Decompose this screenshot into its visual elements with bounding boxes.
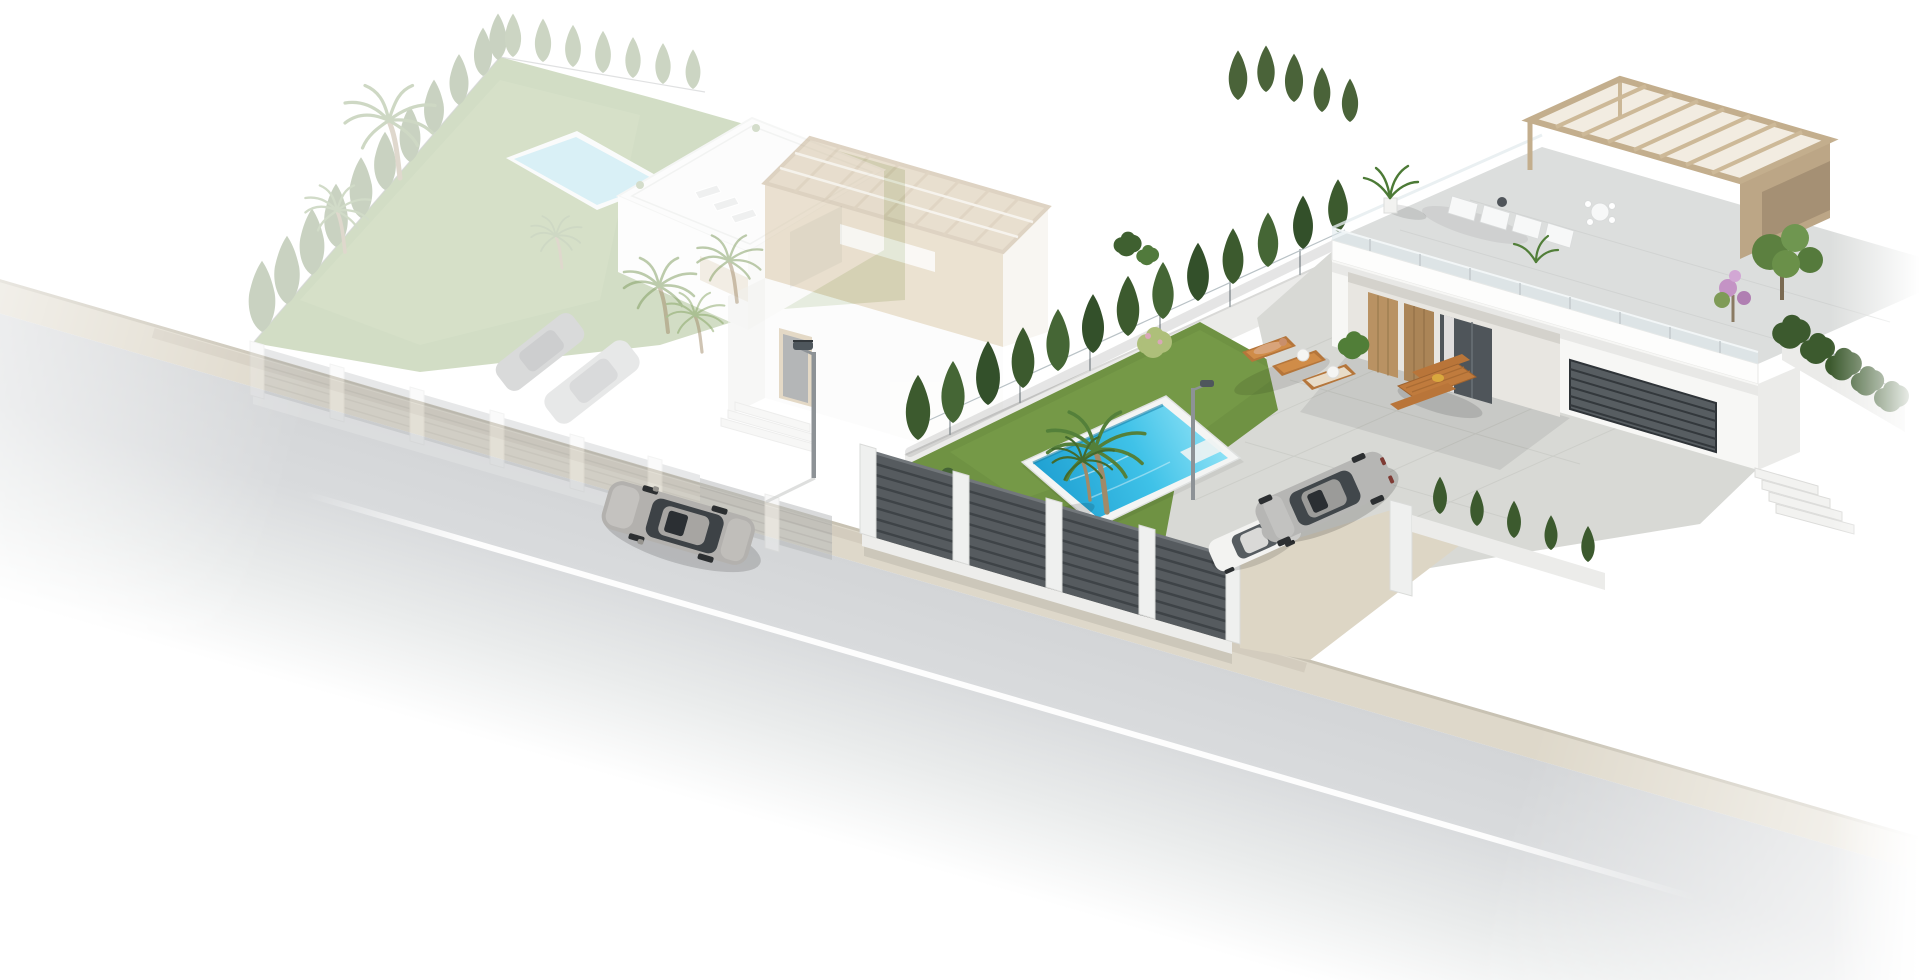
back-trees bbox=[1229, 46, 1358, 123]
right-plot bbox=[860, 46, 1920, 665]
render-canvas bbox=[0, 0, 1920, 980]
gate-pillar bbox=[1390, 500, 1412, 596]
villa-render bbox=[0, 0, 1920, 980]
roof-plant bbox=[1364, 166, 1428, 223]
edge-fade bbox=[1830, 0, 1920, 980]
street-lamp-head bbox=[793, 341, 813, 350]
